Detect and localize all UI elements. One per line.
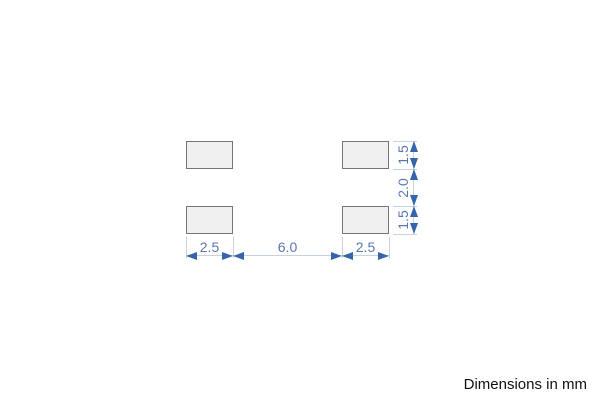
dim-label-row-gap: 2.0 bbox=[396, 178, 410, 197]
pad-bottom-right bbox=[342, 206, 389, 234]
dim-label-top-pad-height: 1.5 bbox=[396, 145, 410, 164]
units-note: Dimensions in mm bbox=[464, 377, 587, 393]
dim-arrow-left-icon bbox=[233, 252, 244, 260]
dim-arrow-right-icon bbox=[378, 252, 389, 260]
dim-arrow-right-icon bbox=[331, 252, 342, 260]
pad-bottom-left bbox=[186, 206, 233, 234]
dim-label-bottom-pad-height: 1.5 bbox=[396, 210, 410, 229]
dimension-line-vertical bbox=[413, 141, 414, 235]
dim-label-right-pad-width: 2.5 bbox=[356, 240, 375, 254]
dim-arrow-right-icon bbox=[222, 252, 233, 260]
dimension-line-horizontal bbox=[186, 255, 390, 256]
technical-drawing-canvas: 2.5 6.0 2.5 1.5 2.0 1.5 Dimensions in mm bbox=[0, 0, 600, 400]
pad-top-right bbox=[342, 141, 389, 169]
dim-arrow-left-icon bbox=[342, 252, 353, 260]
pad-top-left bbox=[186, 141, 233, 169]
dim-label-left-pad-width: 2.5 bbox=[200, 240, 219, 254]
dim-arrow-left-icon bbox=[186, 252, 197, 260]
dim-label-pad-gap: 6.0 bbox=[278, 240, 297, 254]
